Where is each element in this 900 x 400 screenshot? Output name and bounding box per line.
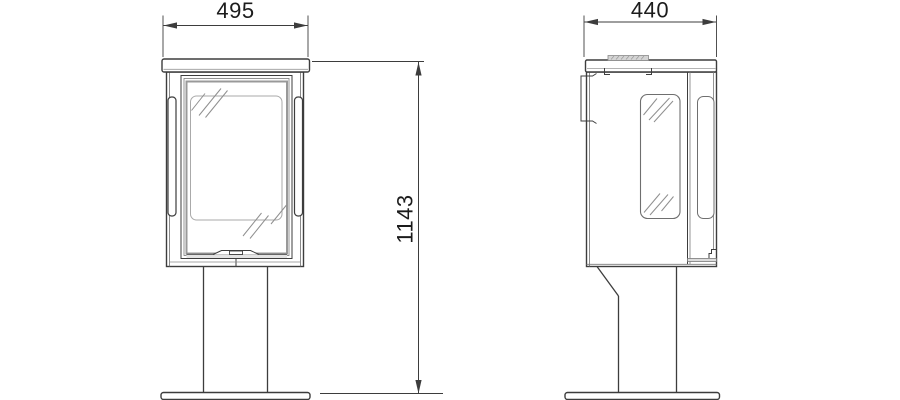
- height-dimension-label: 1143: [393, 194, 418, 243]
- arrowhead: [415, 380, 421, 394]
- front-right-trim: [295, 97, 303, 216]
- front-glass-panel: [191, 96, 283, 220]
- arrowhead: [294, 22, 308, 28]
- front-base-plate: [161, 393, 310, 400]
- arrowhead: [585, 19, 599, 25]
- side-base-plate: [565, 393, 720, 400]
- arrowhead: [415, 62, 421, 76]
- front-left-trim: [168, 97, 176, 216]
- dimension-depth: 440: [584, 0, 717, 57]
- arrowhead: [164, 22, 178, 28]
- dimension-height: 1143: [312, 62, 443, 394]
- side-view: [565, 56, 720, 400]
- side-pedestal-column: [597, 267, 677, 393]
- drawing-canvas: 495 440 1143: [0, 0, 900, 400]
- front-top-plate: [162, 59, 310, 72]
- front-pedestal-column: [204, 267, 268, 393]
- depth-dimension-label: 440: [631, 0, 669, 23]
- technical-drawing: 495 440 1143: [0, 0, 900, 400]
- width-dimension-label: 495: [216, 0, 254, 23]
- arrowhead: [703, 19, 717, 25]
- front-view: [161, 59, 310, 400]
- side-door-panel: [698, 97, 715, 219]
- dimension-front-width: 495: [163, 0, 308, 57]
- side-window: [641, 95, 681, 219]
